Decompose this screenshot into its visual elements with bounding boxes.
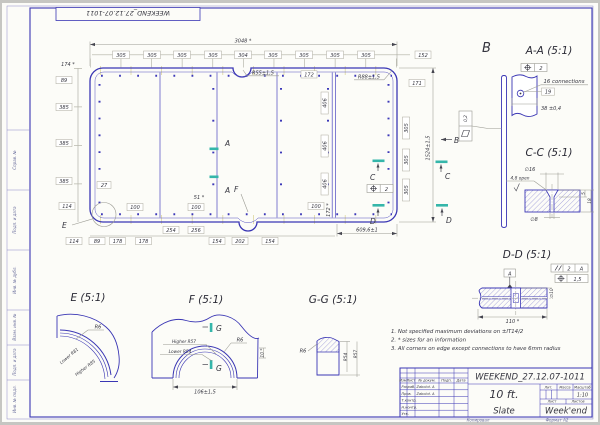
margin-label: Подп. и дата [12,206,17,234]
margin-label: Подп. и дата [12,348,17,376]
dim-top: 304 [238,53,248,59]
position-value: 1,5 [574,277,582,283]
tb-col-date: Дата [455,379,465,383]
f-dim-106: 106±1,5 [194,390,216,396]
dim-r88: R88±1,5 [358,74,380,80]
dim-top: 305 [268,53,278,59]
g-label: G [216,324,222,333]
g-label: G [216,364,222,373]
datum-letter: A [507,271,512,277]
detail-e-title: E (5:1) [70,292,105,304]
tb-company: Week'end [545,407,588,417]
note-2: 2. * sizes for an information [391,338,467,344]
position-tolerance-value: 2 [539,66,542,72]
tb-part-name: 10 ft. [489,388,518,401]
tb-format: Формат A2 [546,418,569,423]
section-g-g-title: G-G (5:1) [309,294,358,306]
dim-r55: R55±1,5 [252,70,274,76]
dim-256: 256 [191,228,201,234]
detail-label-f: F [234,185,239,194]
position-tolerance-value: 2 [385,187,388,193]
tb-sheets-lbl: Листов [570,400,584,404]
position-tolerance-frame: 1,5 [555,275,588,283]
tb-role: Т.контр. [402,399,417,403]
dim-100: 100 [311,204,321,210]
aa-connections-note: 16 connections [543,79,584,85]
tb-role: Утв. [402,412,409,416]
dim-385: 385 [59,105,69,111]
dim-overall-width: 3048 * [235,39,252,45]
section-c-c-title: C-C (5:1) [526,147,573,159]
section-label-d: D [446,216,452,225]
margin-label: Взам. инв. № [12,313,17,340]
gg-dim-r57: R57 [353,350,359,359]
f-dim-higher: Higher R57 [172,339,196,345]
section-label-d: D [370,217,376,226]
margin-label: Справ. № [12,150,17,169]
f-dim-10: 10 * [260,348,266,358]
dim-top: 305 [116,53,126,59]
parallelism-tolerance-frame: 2 A [551,264,588,272]
tb-role: Разраб. [402,385,416,389]
aa-part-outline [512,75,537,117]
section-label-c: C [370,173,376,182]
dim-100: 100 [191,205,201,211]
f-dim-lower: Lower R54 [169,349,192,355]
tb-scale: 1:10 [577,393,588,399]
tb-col-doc: № докум. [417,379,435,383]
dim-406: 406 [323,141,329,151]
tb-col-sign: Подп. [441,379,452,383]
dim-top: 305 [147,53,157,59]
position-tolerance-frame: 2 [521,64,547,72]
dim-406: 406 [323,98,329,108]
note-1: 1. Not specified maximum deviations on ±… [391,329,524,335]
dim-overall-height: 1524±1,5 [426,136,432,161]
tb-mass: Масса [559,385,570,389]
section-a-a-title: A-A (5:1) [525,45,573,57]
dim-51: 51 * [194,195,205,201]
detail-f-title: F (5:1) [189,294,223,306]
cc-dim-d8: ∅8 [530,217,538,223]
dim-171: 171 [412,81,422,87]
dim-154: 154 [212,239,222,245]
dim-172: 172 [304,73,314,79]
dim-385: 385 [59,141,69,147]
gg-dim-r54: R54 [343,353,349,362]
drawing-sheet: Справ. № Подп. и дата Инв. № дубл. Взам.… [0,0,600,425]
dim-top: 305 [299,53,309,59]
dim-89: 89 [61,78,67,84]
tb-scale-lbl: Масштаб [574,385,591,389]
gg-hatched-area [317,337,339,352]
dim-top-right: 152 [418,53,428,59]
view-label-b: B [454,136,459,145]
dim-202: 202 [235,239,245,245]
dim-bottom: 114 [69,239,79,245]
stamp-text: WEEKEND_27.12.07-1011 [86,9,170,17]
dim-top: 305 [208,53,218,59]
e-dim-r6: R6 [95,325,102,331]
tb-col-list: Лист [406,379,417,383]
tb-name: Zabolot. A [416,392,436,396]
tb-lit: Лит. [543,385,552,389]
view-b-bar [502,76,507,228]
dim-254: 254 [166,228,176,234]
aa-dim-19: 19 [545,90,551,96]
tb-role: Пров. [402,392,412,396]
aa-dim-38: 38 ±0,4 [541,106,561,112]
section-label-c: C [445,172,451,181]
cc-dim-d16: ∅16 [525,167,536,173]
view-b-title: B [482,41,491,56]
dim-bottom: 178 [113,239,123,245]
dim-bottom: 89 [94,239,100,245]
dim-406: 406 [323,179,329,189]
dim-305r: 305 [404,185,410,195]
dim-385: 385 [59,179,69,185]
flatness-value: 0,2 [463,115,469,122]
dim-154: 154 [265,239,275,245]
tb-doc-number: WEEKEND_27.12.07-1011 [475,373,585,383]
section-d-d-title: D-D (5:1) [503,249,551,261]
dim-100: 100 [130,205,140,211]
dim-174: 174 * [61,62,75,68]
margin-label: Инв. № подл. [12,385,17,413]
dim-27: 27 [101,183,108,189]
gg-dim-r6: R6 [300,349,307,355]
title-block: WEEKEND_27.12.07-1011 10 ft. Slate Week'… [399,368,592,423]
tb-name: Zabolot. A [416,385,436,389]
parallel-value: 2 [567,266,570,272]
section-label-a: A [224,186,230,195]
tb-sheet-lbl: Лист [547,400,558,404]
dim-114: 114 [62,204,72,210]
dim-bottom: 178 [139,239,149,245]
dd-dim-110: 110 * [506,319,520,325]
tb-copied: Копировал [467,418,490,423]
section-label-a: A [224,139,230,148]
margin-label: Инв. № дубл. [12,266,17,293]
parallel-ref: A [579,266,584,272]
tb-material: Slate [493,407,515,417]
dim-top: 305 [330,53,340,59]
dim-top: 305 [177,53,187,59]
cc-dim-5: 5 [581,192,587,195]
tb-role: Н.контр. [402,405,418,409]
dd-dim-d10: ∅10 [549,288,555,297]
dim-172v: 172 * [326,203,332,217]
f-dim-r6: R6 [237,338,244,344]
cc-dim-18: 18 [587,198,593,204]
position-tolerance-frame: 2 [367,185,393,193]
orientation-stamp: WEEKEND_27.12.07-1011 [56,8,200,21]
dim-305r: 305 [404,123,410,133]
dim-609: 609,6±1 [356,228,378,234]
dim-top: 305 [361,53,371,59]
cc-dim-open: 4,8 open [511,176,530,182]
dim-305r: 305 [404,155,410,165]
detail-label-e: E [62,221,67,230]
note-3: 3. All corners on edge except connection… [391,346,561,352]
